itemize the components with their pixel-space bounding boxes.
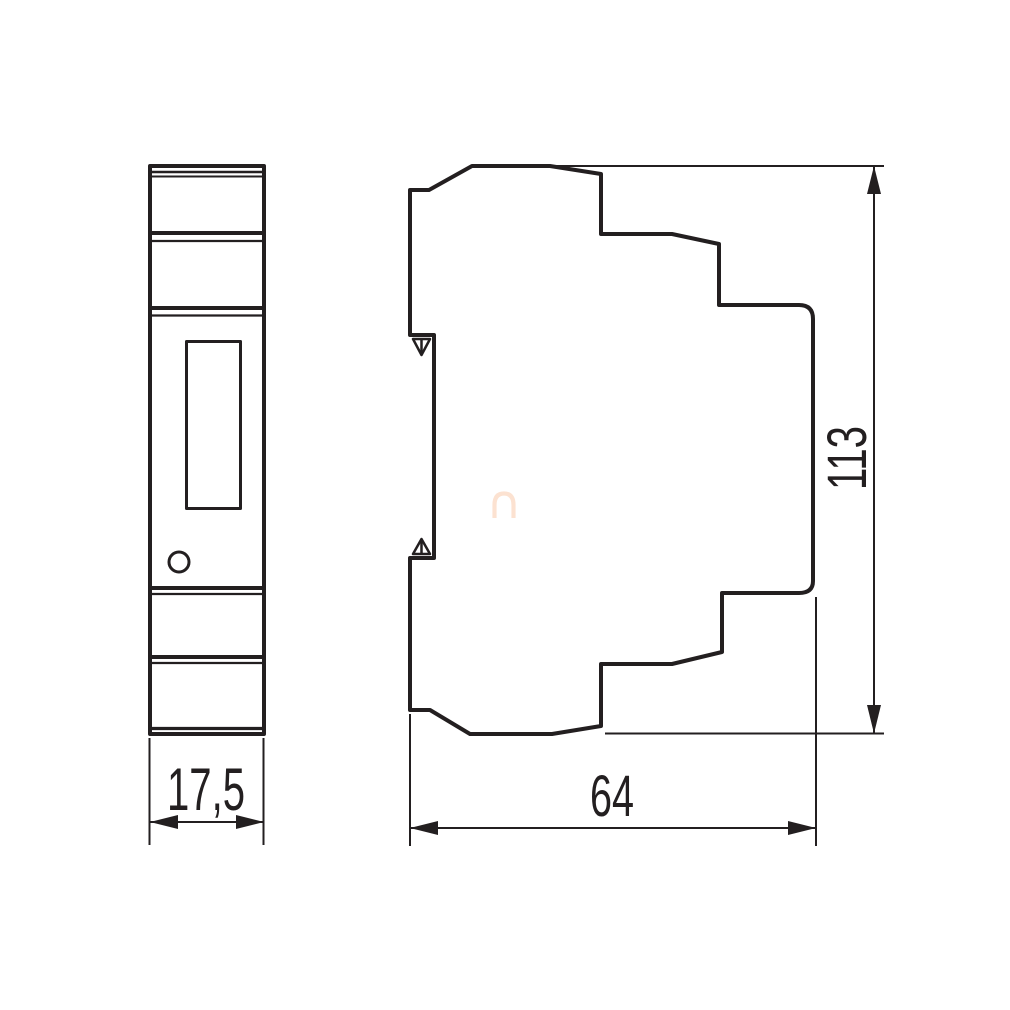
front-led-indicator xyxy=(169,552,189,572)
technical-drawing: 17,5 64 113 xyxy=(0,0,1010,1010)
depth-arrow-right xyxy=(788,821,816,835)
depth-arrow-left xyxy=(410,821,438,835)
height-dimension-label: 113 xyxy=(815,426,878,490)
width-dimension: 17,5 xyxy=(150,738,265,845)
depth-dimension: 64 xyxy=(410,597,816,846)
drawing-canvas: 17,5 64 113 xyxy=(0,0,1010,1010)
height-arrow-top xyxy=(867,166,881,194)
width-dimension-label: 17,5 xyxy=(167,756,245,823)
side-view xyxy=(410,166,813,734)
front-view xyxy=(150,166,264,734)
watermark-glyph xyxy=(495,494,514,519)
side-outline xyxy=(410,166,813,734)
front-display-window xyxy=(187,342,241,509)
front-body-outline xyxy=(150,166,264,734)
depth-dimension-label: 64 xyxy=(590,764,634,829)
height-arrow-bottom xyxy=(867,705,881,734)
